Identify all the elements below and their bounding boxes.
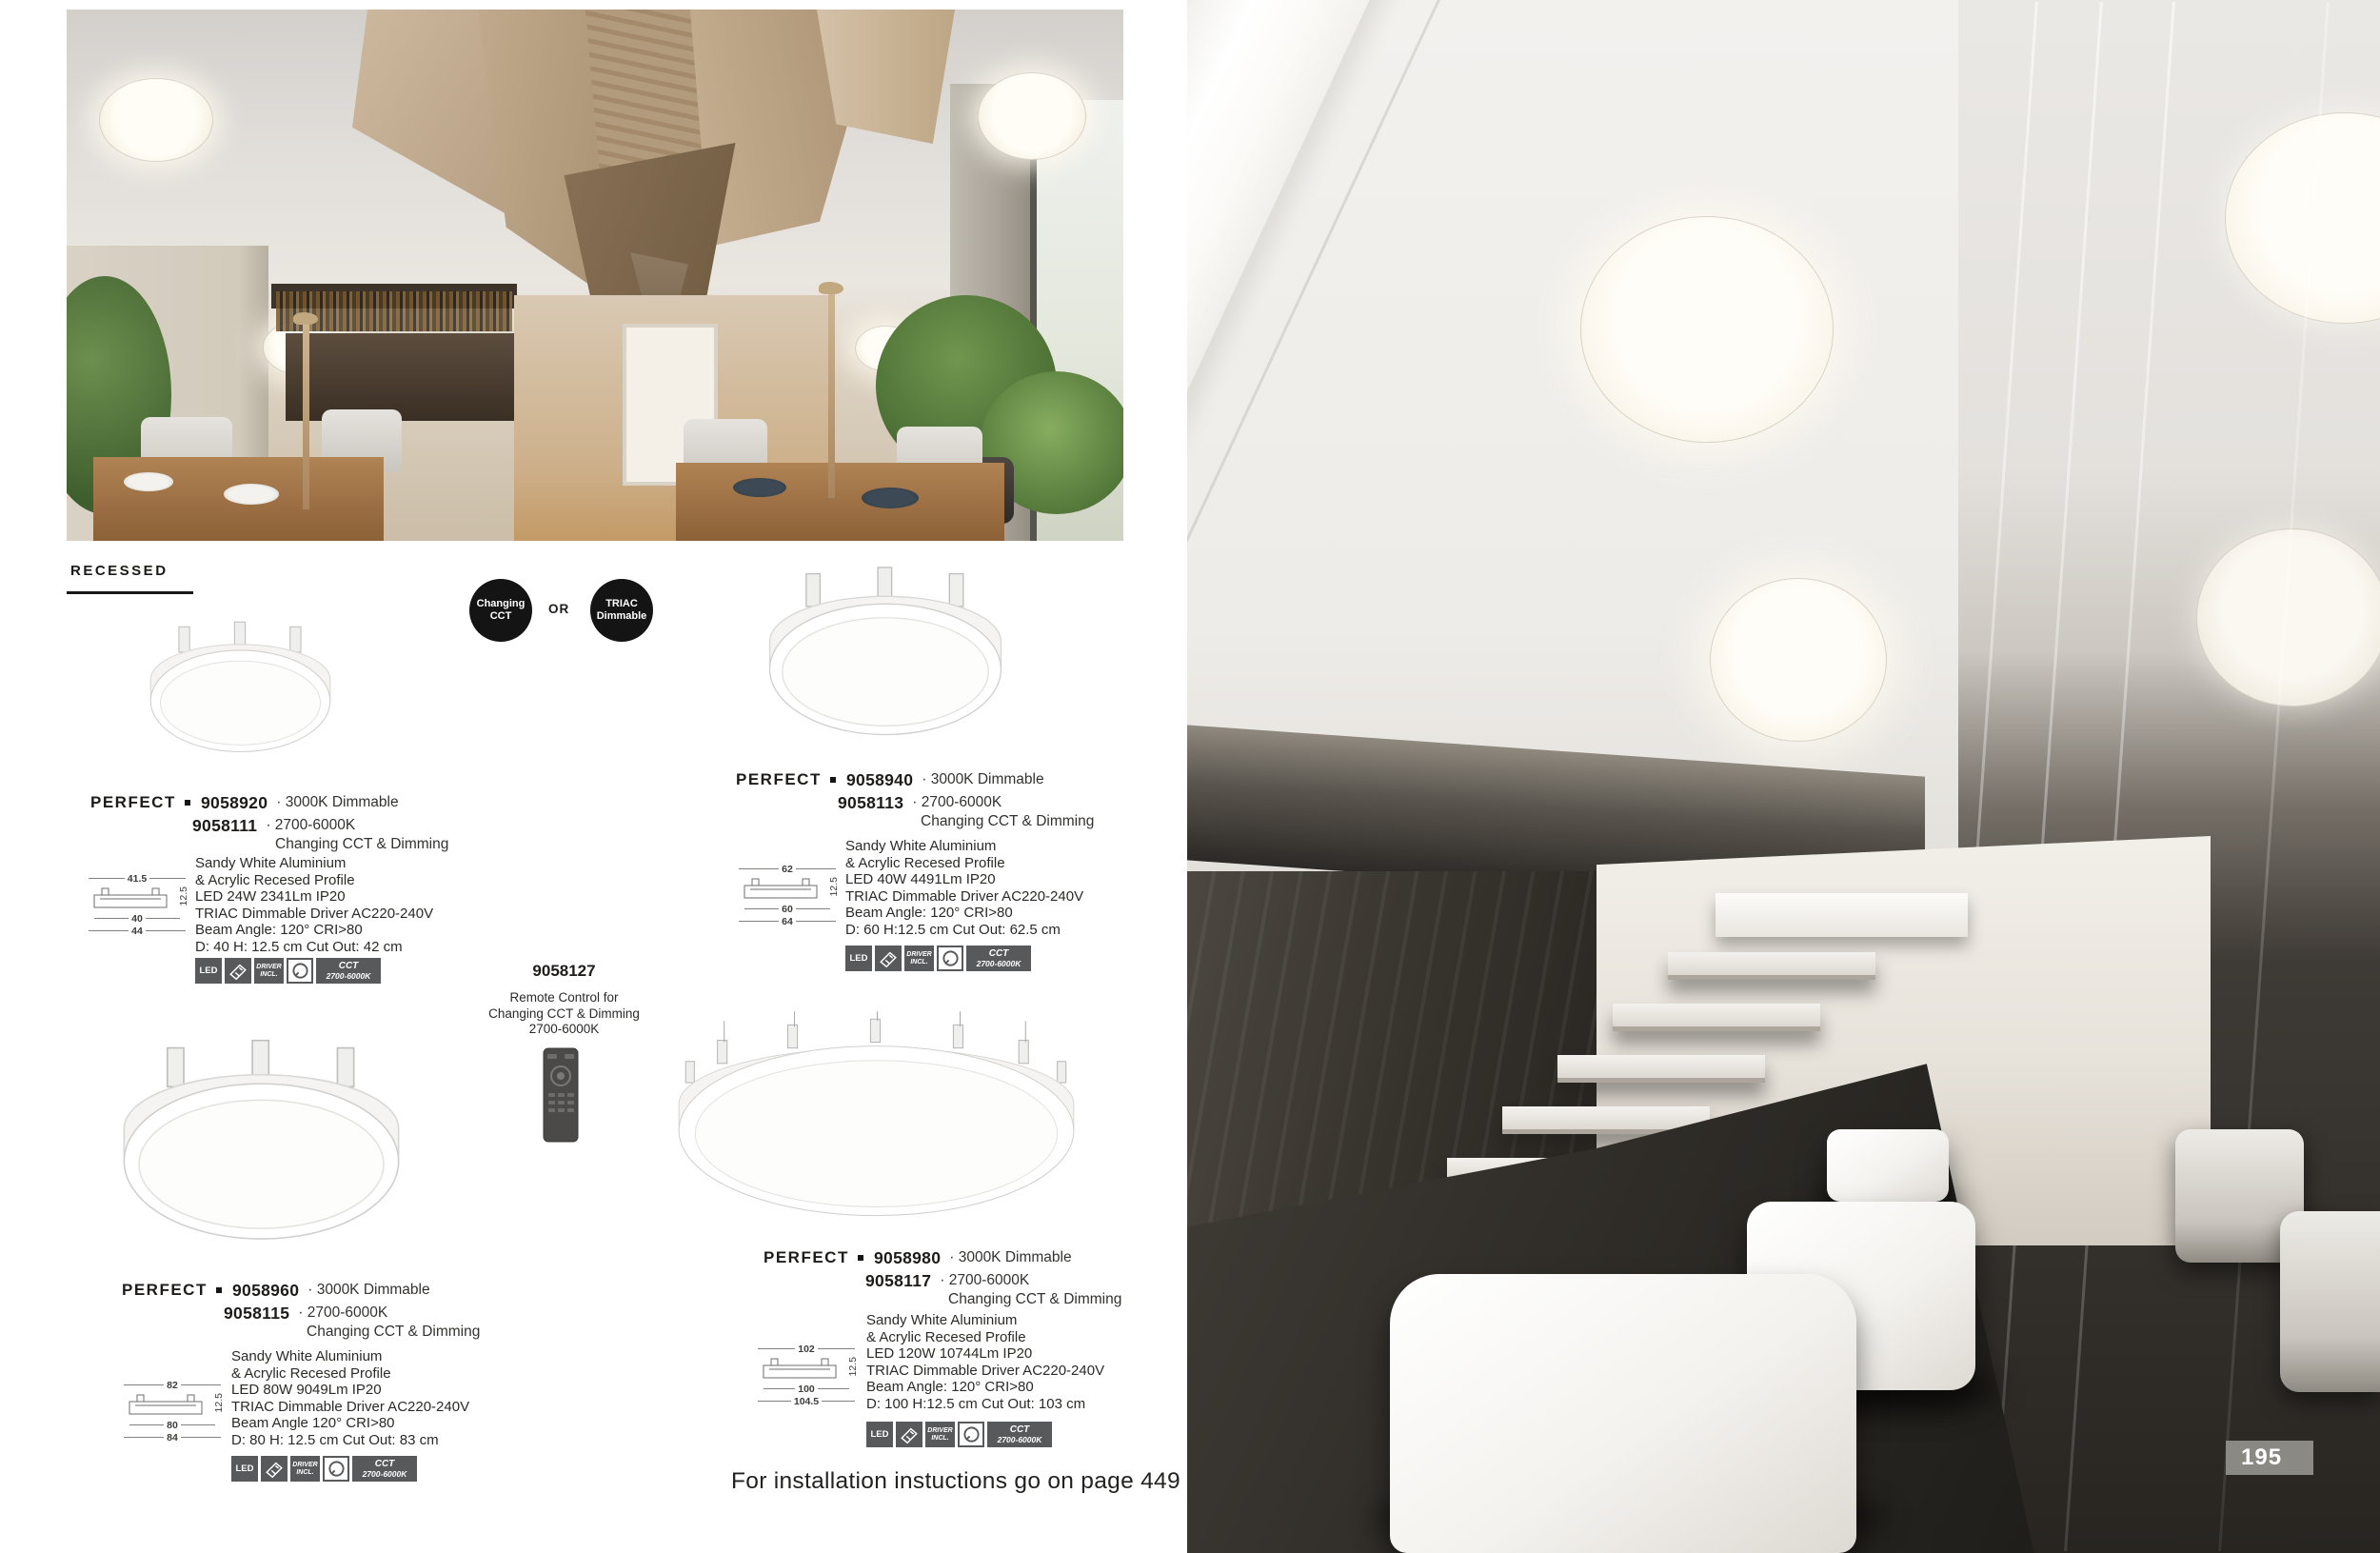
bar-counter	[286, 333, 519, 421]
product-specs-9058940: Sandy White Aluminium & Acrylic Recesed …	[845, 838, 1083, 939]
cct-range: 2700-6000K	[998, 1435, 1042, 1444]
driver-included-icon: DRIVER INCL.	[254, 958, 284, 984]
product-image-9058960	[78, 1036, 445, 1260]
mirror-panel-seam	[2064, 2, 2175, 1551]
mirrored-stool	[2280, 1211, 2380, 1392]
product-image-9058920	[143, 617, 338, 767]
separator-dot	[185, 800, 190, 806]
spec-line: D: 60 H:12.5 cm Cut Out: 62.5 cm	[845, 922, 1083, 939]
dim-top-row: 62	[739, 863, 836, 875]
product-heading-9058940: PERFECT 9058940 · 3000K Dimmable 9058113…	[736, 767, 1094, 830]
remote-drawing	[543, 1047, 579, 1143]
dim-height-value: 12.5	[213, 1393, 225, 1412]
dim-middle-value: 60	[782, 904, 793, 915]
spec-line: LED 24W 2341Lm IP20	[195, 888, 433, 906]
dim-top-row: 41.5	[89, 872, 186, 885]
spec-line: Sandy White Aluminium	[231, 1348, 469, 1365]
triac-dimmable-badge: TRIAC Dimmable	[590, 579, 653, 642]
dim-middle-row: 40	[89, 912, 186, 925]
product-variant: · 2700-6000K	[266, 817, 355, 834]
product-variant: · 3000K Dimmable	[307, 1282, 429, 1299]
product-heading-9058980: PERFECT 9058980 · 3000K Dimmable 9058117…	[764, 1245, 1121, 1308]
feature-icons-9058940: LED DRIVER INCL. CCT 2700-6000K	[845, 946, 1031, 971]
dimmable-icon	[937, 946, 963, 971]
spec-line: TRIAC Dimmable Driver AC220-240V	[845, 888, 1083, 906]
product-variant: · 3000K Dimmable	[922, 771, 1043, 788]
dim-middle-value: 100	[798, 1384, 815, 1395]
spec-line: D: 40 H: 12.5 cm Cut Out: 42 cm	[195, 939, 433, 956]
profile-drawing	[126, 1392, 206, 1418]
dim-profile-row: 12.5	[739, 876, 836, 902]
cct-range-badge: CCT 2700-6000K	[352, 1456, 417, 1482]
product-variant: Changing CCT & Dimming	[921, 813, 1094, 830]
spec-line: D: 100 H:12.5 cm Cut Out: 103 cm	[866, 1396, 1104, 1413]
remote-desc-line: 2700-6000K	[471, 1022, 657, 1038]
dim-profile-row: 12.5	[758, 1356, 855, 1382]
dim-bottom-row: 64	[739, 915, 836, 927]
driver-label-line: INCL.	[910, 959, 927, 966]
spec-line: & Acrylic Recesed Profile	[866, 1329, 1104, 1346]
product-variant: · 3000K Dimmable	[949, 1249, 1071, 1266]
separator-dot	[830, 777, 836, 783]
spec-line: Sandy White Aluminium	[866, 1312, 1104, 1329]
spec-line: Beam Angle: 120° CRI>80	[866, 1379, 1104, 1396]
driver-included-icon: DRIVER INCL.	[925, 1422, 955, 1447]
product-family: PERFECT	[736, 770, 820, 789]
cct-range-badge: CCT 2700-6000K	[966, 946, 1031, 971]
dim-middle-row: 80	[124, 1419, 221, 1431]
white-stool	[1390, 1274, 1856, 1553]
led-icon: LED	[231, 1456, 258, 1482]
badge-line: TRIAC	[605, 598, 638, 610]
spec-line: TRIAC Dimmable Driver AC220-240V	[866, 1363, 1104, 1380]
dim-profile-row: 12.5	[124, 1392, 221, 1418]
remote-description: Remote Control for Changing CCT & Dimmin…	[471, 990, 657, 1038]
dim-top-row: 82	[124, 1379, 221, 1391]
dining-table	[676, 463, 1004, 541]
spec-line: TRIAC Dimmable Driver AC220-240V	[231, 1399, 469, 1416]
recessed-ceiling-light	[99, 78, 213, 162]
cct-label: CCT	[375, 1459, 395, 1469]
product-code: 9058115	[224, 1304, 289, 1324]
cct-range: 2700-6000K	[363, 1469, 407, 1479]
dimmable-icon	[287, 958, 313, 984]
dim-bottom-value: 84	[167, 1432, 178, 1443]
badge-line: CCT	[490, 610, 512, 623]
plate	[224, 484, 279, 505]
changing-cct-badge: Changing CCT	[469, 579, 532, 642]
bar-bottles	[276, 291, 512, 331]
product-specs-9058980: Sandy White Aluminium & Acrylic Recesed …	[866, 1312, 1104, 1413]
driver-label-line: DRIVER	[927, 1427, 952, 1435]
spec-line: Beam Angle 120° CRI>80	[231, 1415, 469, 1432]
product-image-9058940	[728, 564, 1042, 752]
stair-landing	[1716, 893, 1968, 937]
product-variant: · 3000K Dimmable	[276, 794, 398, 811]
product-image-9058980	[664, 1011, 1088, 1235]
wood-totem	[828, 293, 835, 498]
recessed-ceiling-light	[978, 72, 1086, 160]
dimension-diagram-9058980: 102 12.5 100 104.5	[758, 1343, 855, 1407]
remote-control-image	[543, 1047, 579, 1143]
product-variant: · 2700-6000K	[940, 1272, 1029, 1289]
section-title: RECESSED	[70, 563, 169, 579]
dimension-diagram-9058920: 41.5 12.5 40 44	[89, 872, 186, 937]
spec-line: & Acrylic Recesed Profile	[195, 872, 433, 889]
product-specs-9058960: Sandy White Aluminium & Acrylic Recesed …	[231, 1348, 469, 1449]
wide-panel-drawing	[664, 1011, 1088, 1235]
dim-bottom-row: 104.5	[758, 1395, 855, 1407]
spec-line: & Acrylic Recesed Profile	[231, 1365, 469, 1383]
product-variant: Changing CCT & Dimming	[307, 1324, 480, 1341]
dim-top-value: 102	[798, 1344, 815, 1355]
feature-icons-9058980: LED DRIVER INCL. CCT 2700-6000K	[866, 1422, 1052, 1447]
spec-line: LED 120W 10744Lm IP20	[866, 1345, 1104, 1363]
round-panel-drawing	[728, 564, 1042, 752]
driver-included-icon: DRIVER INCL.	[904, 946, 934, 971]
cct-range: 2700-6000K	[327, 971, 371, 981]
wood-totem	[303, 324, 309, 509]
white-stool	[1827, 1129, 1949, 1202]
product-code: 9058980	[874, 1248, 941, 1268]
dimmable-icon	[323, 1456, 349, 1482]
dim-middle-value: 40	[131, 913, 143, 925]
driver-label-line: DRIVER	[256, 964, 281, 971]
spec-line: & Acrylic Recesed Profile	[845, 855, 1083, 872]
cct-range-badge: CCT 2700-6000K	[987, 1422, 1052, 1447]
product-code: 9058117	[865, 1271, 931, 1291]
catalog-page: RECESSED Changing CCT OR TRIAC Dimmable	[0, 0, 2380, 1553]
dimension-diagram-9058960: 82 12.5 80 84	[124, 1379, 221, 1443]
wood-bird-sculpture	[819, 282, 843, 294]
dim-height-value: 12.5	[828, 877, 840, 896]
dim-middle-row: 60	[739, 903, 836, 915]
remote-desc-line: Changing CCT & Dimming	[471, 1006, 657, 1023]
mirrored-ceiling-light	[2225, 112, 2380, 324]
product-family: PERFECT	[90, 793, 174, 812]
dim-profile-row: 12.5	[89, 886, 186, 911]
dim-top-value: 62	[782, 864, 793, 875]
product-heading-9058960: PERFECT 9058960 · 3000K Dimmable 9058115…	[122, 1278, 480, 1341]
cct-range: 2700-6000K	[977, 959, 1021, 968]
section-underline	[67, 591, 193, 594]
separator-dot	[216, 1287, 222, 1293]
page-number-badge: 195	[2226, 1441, 2313, 1475]
spec-line: Sandy White Aluminium	[195, 855, 433, 872]
cct-label: CCT	[339, 961, 359, 971]
product-code: 9058111	[192, 816, 257, 836]
dim-height-value: 12.5	[847, 1357, 859, 1376]
driver-label-line: DRIVER	[292, 1462, 317, 1469]
product-variant: · 2700-6000K	[912, 794, 1002, 811]
driver-included-icon: DRIVER INCL.	[290, 1456, 320, 1482]
product-heading-9058920: PERFECT 9058920 · 3000K Dimmable 9058111…	[90, 790, 448, 853]
led-icon: LED	[866, 1422, 893, 1447]
separator-dot	[858, 1255, 863, 1261]
feature-icons-9058960: LED DRIVER INCL. CCT 2700-6000K	[231, 1456, 417, 1482]
cct-label: CCT	[1010, 1424, 1030, 1435]
product-family: PERFECT	[764, 1248, 847, 1267]
dim-bottom-value: 44	[131, 926, 143, 937]
spec-line: LED 80W 9049Lm IP20	[231, 1382, 469, 1399]
product-code: 9058920	[201, 793, 268, 813]
dim-bottom-value: 64	[782, 916, 793, 927]
spec-line: TRIAC Dimmable Driver AC220-240V	[195, 906, 433, 923]
spec-line: LED 40W 4491Lm IP20	[845, 871, 1083, 888]
recessed-profile-icon	[225, 958, 251, 984]
stair-tread	[1613, 1004, 1820, 1031]
mirror-panel-seam	[1992, 2, 2103, 1551]
product-variant: Changing CCT & Dimming	[948, 1291, 1121, 1308]
interior-application-photo: 195	[1187, 0, 2380, 1553]
dimmable-icon	[958, 1422, 984, 1447]
product-code: 9058113	[838, 793, 903, 813]
spec-line: Beam Angle: 120° CRI>80	[195, 922, 433, 939]
restaurant-ambience-photo	[67, 10, 1123, 541]
spec-line: D: 80 H: 12.5 cm Cut Out: 83 cm	[231, 1432, 469, 1449]
product-code: 9058960	[232, 1281, 299, 1301]
badge-line: Dimmable	[597, 610, 647, 623]
driver-label-line: INCL.	[260, 971, 277, 979]
led-icon: LED	[845, 946, 872, 971]
dim-bottom-value: 104.5	[794, 1396, 819, 1407]
spec-line: Sandy White Aluminium	[845, 838, 1083, 855]
round-panel-drawing	[78, 1036, 445, 1260]
product-family: PERFECT	[122, 1281, 206, 1300]
or-label: OR	[548, 602, 569, 616]
cct-range-badge: CCT 2700-6000K	[316, 958, 381, 984]
feature-icons-9058920: LED DRIVER INCL. CCT 2700-6000K	[195, 958, 381, 984]
driver-label-line: DRIVER	[906, 951, 931, 959]
dim-top-row: 102	[758, 1343, 855, 1355]
product-code: 9058940	[846, 770, 913, 790]
recessed-profile-icon	[896, 1422, 922, 1447]
profile-drawing	[90, 886, 170, 911]
product-variant: · 2700-6000K	[298, 1304, 387, 1322]
led-icon: LED	[195, 958, 222, 984]
stair-tread	[1668, 952, 1875, 980]
dim-top-value: 82	[167, 1380, 178, 1391]
dim-top-value: 41.5	[128, 873, 147, 885]
driver-label-line: INCL.	[931, 1435, 948, 1443]
badge-line: Changing	[477, 598, 526, 610]
spec-line: Beam Angle: 120° CRI>80	[845, 905, 1083, 922]
remote-code: 9058127	[481, 962, 647, 981]
recessed-profile-icon	[875, 946, 902, 971]
dim-bottom-row: 44	[89, 925, 186, 937]
profile-drawing	[760, 1356, 840, 1382]
recessed-profile-icon	[261, 1456, 288, 1482]
plate	[733, 478, 786, 497]
round-panel-drawing	[143, 617, 338, 767]
profile-drawing	[741, 876, 821, 902]
plate	[124, 472, 173, 491]
recessed-ceiling-light	[1580, 216, 1834, 443]
cct-label: CCT	[989, 948, 1009, 959]
product-specs-9058920: Sandy White Aluminium & Acrylic Recesed …	[195, 855, 433, 956]
driver-label-line: INCL.	[296, 1469, 313, 1477]
stair-tread	[1557, 1055, 1765, 1083]
plate	[862, 488, 919, 508]
wood-bird-sculpture	[293, 312, 318, 325]
remote-desc-line: Remote Control for	[471, 990, 657, 1006]
dim-bottom-row: 84	[124, 1431, 221, 1443]
dim-middle-value: 80	[167, 1420, 178, 1431]
recessed-ceiling-light	[1710, 578, 1887, 742]
product-variant: Changing CCT & Dimming	[275, 836, 448, 853]
dimension-diagram-9058940: 62 12.5 60 64	[739, 863, 836, 927]
dim-height-value: 12.5	[178, 886, 189, 906]
installation-note: For installation instuctions go on page …	[731, 1468, 1180, 1495]
dim-middle-row: 100	[758, 1383, 855, 1395]
